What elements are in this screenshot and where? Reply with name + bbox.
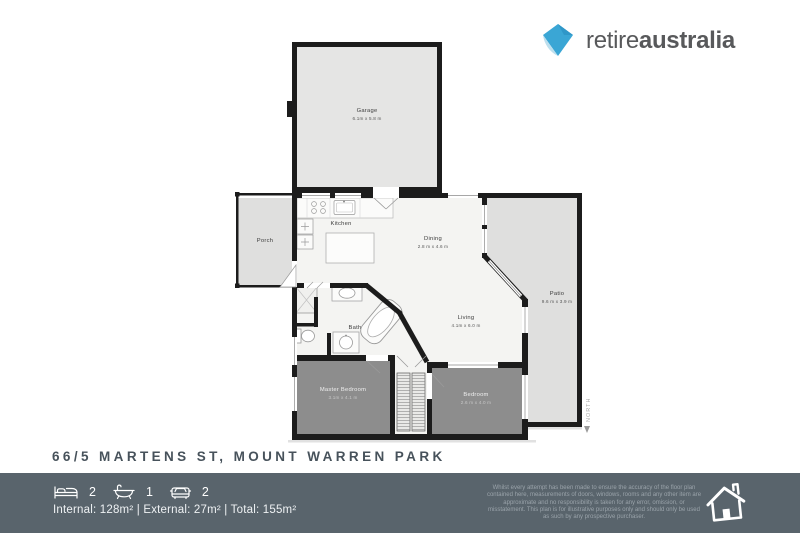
north-arrow-icon <box>584 426 590 433</box>
bath-label: Bath <box>349 325 362 331</box>
patio-label: Patio <box>550 291 564 297</box>
dining-dims: 2.8 m x 4.6 m <box>418 244 448 249</box>
bedroom-dims: 2.6 m x 4.0 m <box>461 400 491 405</box>
north-label: NORTH <box>586 398 592 422</box>
area-summary: Internal: 128m² | External: 27m² | Total… <box>53 504 296 516</box>
garage-dims: 6.1m x 5.8 m <box>353 116 382 121</box>
disclaimer-text: Whilst every attempt has been made to en… <box>486 485 702 522</box>
living-label: Living <box>458 315 475 321</box>
bath-icon <box>112 483 136 500</box>
property-address: 66/5 MARTENS ST, MOUNT WARREN PARK <box>52 449 446 464</box>
floor-plan: Garage 6.1m x 5.8 m Porch Kitchen Dining… <box>230 35 610 445</box>
property-stats: 2 1 2 <box>53 483 215 500</box>
porch-label: Porch <box>257 238 273 244</box>
logo-word-bold: australia <box>639 27 735 54</box>
north-indicator: NORTH <box>584 398 592 433</box>
master-bedroom-dims: 3.1m x 4.1 m <box>329 395 358 400</box>
patio-dims: 9.6 m x 3.9 m <box>542 299 572 304</box>
master-bedroom-label: Master Bedroom <box>320 387 366 393</box>
kitchen-label: Kitchen <box>330 221 351 227</box>
bedroom-label: Bedroom <box>463 392 488 398</box>
house-icon <box>702 481 750 527</box>
car-count: 2 <box>202 485 209 499</box>
car-icon <box>169 483 192 500</box>
dining-label: Dining <box>424 236 442 242</box>
floorplan-page: retireaustralia <box>0 0 800 533</box>
bath-count: 1 <box>146 485 153 499</box>
footer-band: 2 1 2 Internal: 128m² | External: 27m² |… <box>0 473 800 533</box>
garage-label: Garage <box>357 108 378 114</box>
bed-icon <box>53 483 79 500</box>
living-dims: 4.1m x 6.0 m <box>452 323 481 328</box>
bed-count: 2 <box>89 485 96 499</box>
